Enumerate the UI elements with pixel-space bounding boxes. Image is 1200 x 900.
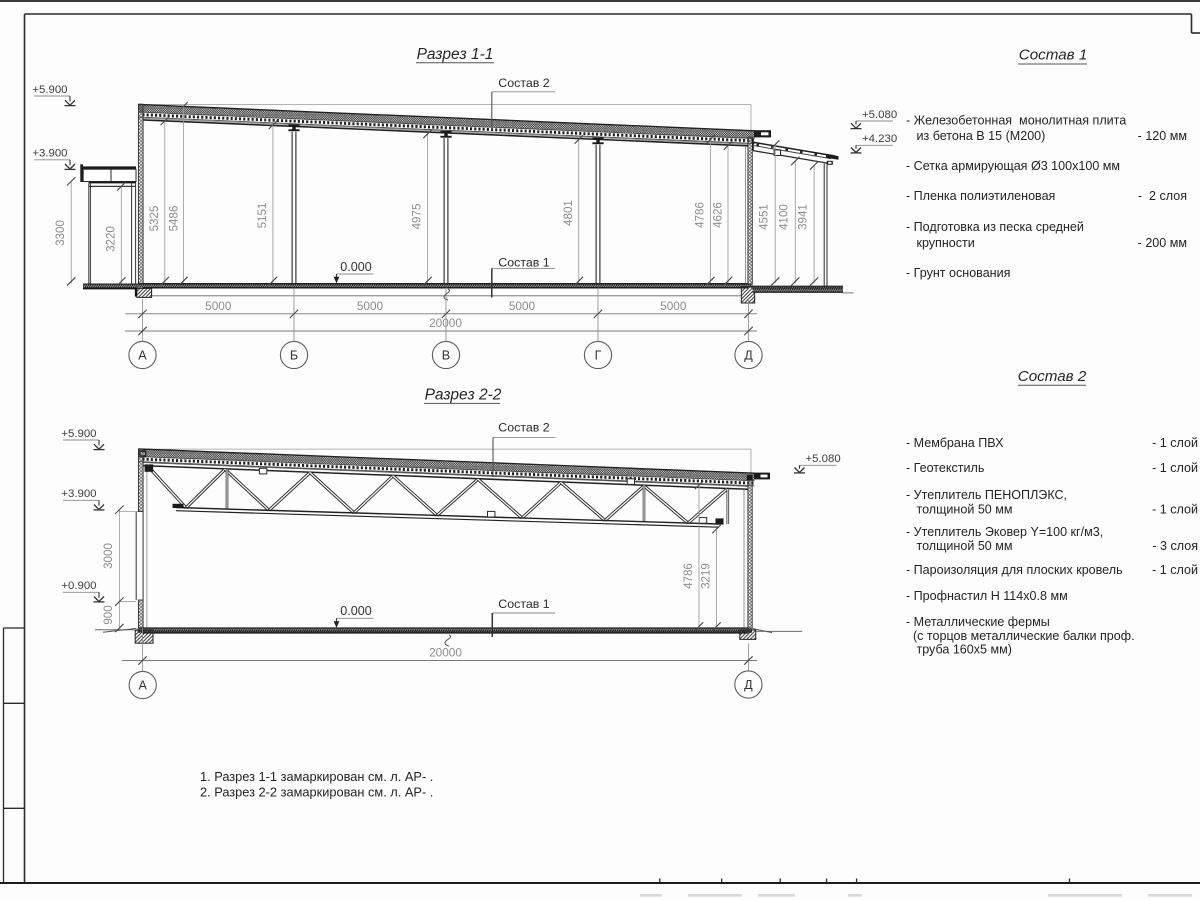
svg-text:3300: 3300 [54, 220, 67, 246]
svg-text:Состав 1: Состав 1 [498, 597, 549, 611]
svg-text:3220: 3220 [104, 226, 117, 252]
svg-text:+3.900: +3.900 [61, 488, 96, 500]
svg-text:Состав 2: Состав 2 [1018, 368, 1087, 385]
svg-text:4100: 4100 [778, 204, 791, 230]
svg-text:+5.900: +5.900 [32, 84, 67, 96]
svg-text:Состав 1: Состав 1 [498, 255, 549, 269]
svg-text:- Утеплитель Эковер Y=100 кг/м: - Утеплитель Эковер Y=100 кг/м3, [906, 525, 1103, 539]
svg-text:Разрез 2-2: Разрез 2-2 [425, 387, 502, 404]
svg-text:4786: 4786 [682, 563, 695, 589]
svg-text:Д: Д [744, 349, 753, 363]
svg-text:900: 900 [102, 605, 115, 624]
svg-text:+5.900: +5.900 [61, 428, 96, 440]
svg-text:5000: 5000 [660, 299, 687, 313]
svg-text:5151: 5151 [256, 203, 269, 229]
svg-text:- 120 мм: - 120 мм [1138, 129, 1187, 143]
svg-text:+3.900: +3.900 [32, 148, 67, 160]
svg-text:- Геотекстиль: - Геотекстиль [906, 461, 985, 475]
svg-text:5000: 5000 [509, 299, 536, 313]
svg-text:- Грунт основания: - Грунт основания [906, 266, 1010, 280]
svg-text:5000: 5000 [357, 299, 384, 313]
svg-text:из бетона В 15 (М200): из бетона В 15 (М200) [906, 129, 1045, 143]
svg-text:5486: 5486 [167, 206, 180, 232]
svg-text:3219: 3219 [700, 563, 713, 589]
svg-text:4786: 4786 [694, 202, 707, 228]
svg-text:- 1 слой: - 1 слой [1152, 563, 1198, 577]
svg-text:- Пароизоляция для плоских кро: - Пароизоляция для плоских кровель [906, 563, 1123, 577]
svg-text:- Мембрана ПВХ: - Мембрана ПВХ [906, 436, 1004, 450]
svg-text:- Утеплитель ПЕНОПЛЭКС,: - Утеплитель ПЕНОПЛЭКС, [906, 488, 1067, 502]
svg-text:- 2 слоя: - 2 слоя [1138, 189, 1187, 203]
svg-text:- Профнастил Н 114х0.8 мм: - Профнастил Н 114х0.8 мм [906, 589, 1068, 603]
svg-text:+4.230: +4.230 [862, 133, 897, 145]
svg-text:Б: Б [290, 349, 298, 363]
svg-text:1. Разрез 1-1 замаркирован см.: 1. Разрез 1-1 замаркирован см. л. АР- . [200, 769, 433, 784]
svg-text:- 1 слой: - 1 слой [1152, 503, 1198, 517]
svg-text:- 3 слоя: - 3 слоя [1152, 539, 1198, 553]
svg-text:+5.080: +5.080 [862, 109, 897, 121]
svg-text:- Железобетонная монолитная п: - Железобетонная монолитная плита [906, 114, 1126, 128]
svg-text:5000: 5000 [205, 299, 232, 313]
svg-text:крупности: крупности [906, 236, 975, 250]
svg-text:Состав 2: Состав 2 [498, 76, 549, 90]
svg-text:0.000: 0.000 [340, 604, 372, 618]
svg-text:2. Разрез 2-2 замаркирован см.: 2. Разрез 2-2 замаркирован см. л. АР- . [200, 785, 433, 800]
svg-text:- 1 слой: - 1 слой [1152, 461, 1198, 475]
svg-text:толщиной 50 мм: толщиной 50 мм [906, 503, 1013, 517]
svg-text:- Металлические фермы: - Металлические фермы [906, 615, 1050, 629]
svg-text:А: А [138, 678, 147, 692]
svg-text:4626: 4626 [712, 202, 725, 228]
svg-text:- 1 слой: - 1 слой [1152, 436, 1198, 450]
svg-text:5325: 5325 [148, 206, 161, 232]
svg-text:0.000: 0.000 [340, 260, 372, 274]
svg-text:4551: 4551 [758, 204, 771, 230]
svg-text:- Подготовка из песка средней: - Подготовка из песка средней [906, 220, 1084, 234]
svg-text:3000: 3000 [102, 543, 115, 569]
svg-text:+5.080: +5.080 [806, 453, 841, 465]
svg-text:Разрез 1-1: Разрез 1-1 [417, 46, 494, 63]
svg-text:Д: Д [744, 678, 753, 692]
svg-text:толщиной 50 мм: толщиной 50 мм [906, 539, 1013, 553]
svg-text:- 200 мм: - 200 мм [1138, 236, 1187, 250]
svg-text:В: В [442, 349, 450, 363]
svg-text:труба 160х5 мм): труба 160х5 мм) [906, 643, 1012, 657]
svg-text:- Пленка полиэтиленовая: - Пленка полиэтиленовая [906, 189, 1055, 203]
svg-text:20000: 20000 [429, 316, 462, 330]
svg-text:(с торцов металлические балки: (с торцов металлические балки проф. [906, 629, 1135, 643]
svg-text:20000: 20000 [429, 645, 462, 659]
svg-text:4801: 4801 [562, 200, 575, 226]
svg-text:3941: 3941 [797, 204, 810, 230]
svg-text:Г: Г [595, 349, 602, 363]
svg-text:Состав 2: Состав 2 [498, 421, 549, 435]
svg-text:Состав 1: Состав 1 [1019, 47, 1088, 64]
svg-text:- Сетка армирующая Ø3 100х100: - Сетка армирующая Ø3 100х100 мм [906, 159, 1120, 173]
svg-text:+0.900: +0.900 [61, 580, 96, 592]
svg-text:А: А [138, 349, 147, 363]
svg-text:4975: 4975 [410, 204, 423, 230]
